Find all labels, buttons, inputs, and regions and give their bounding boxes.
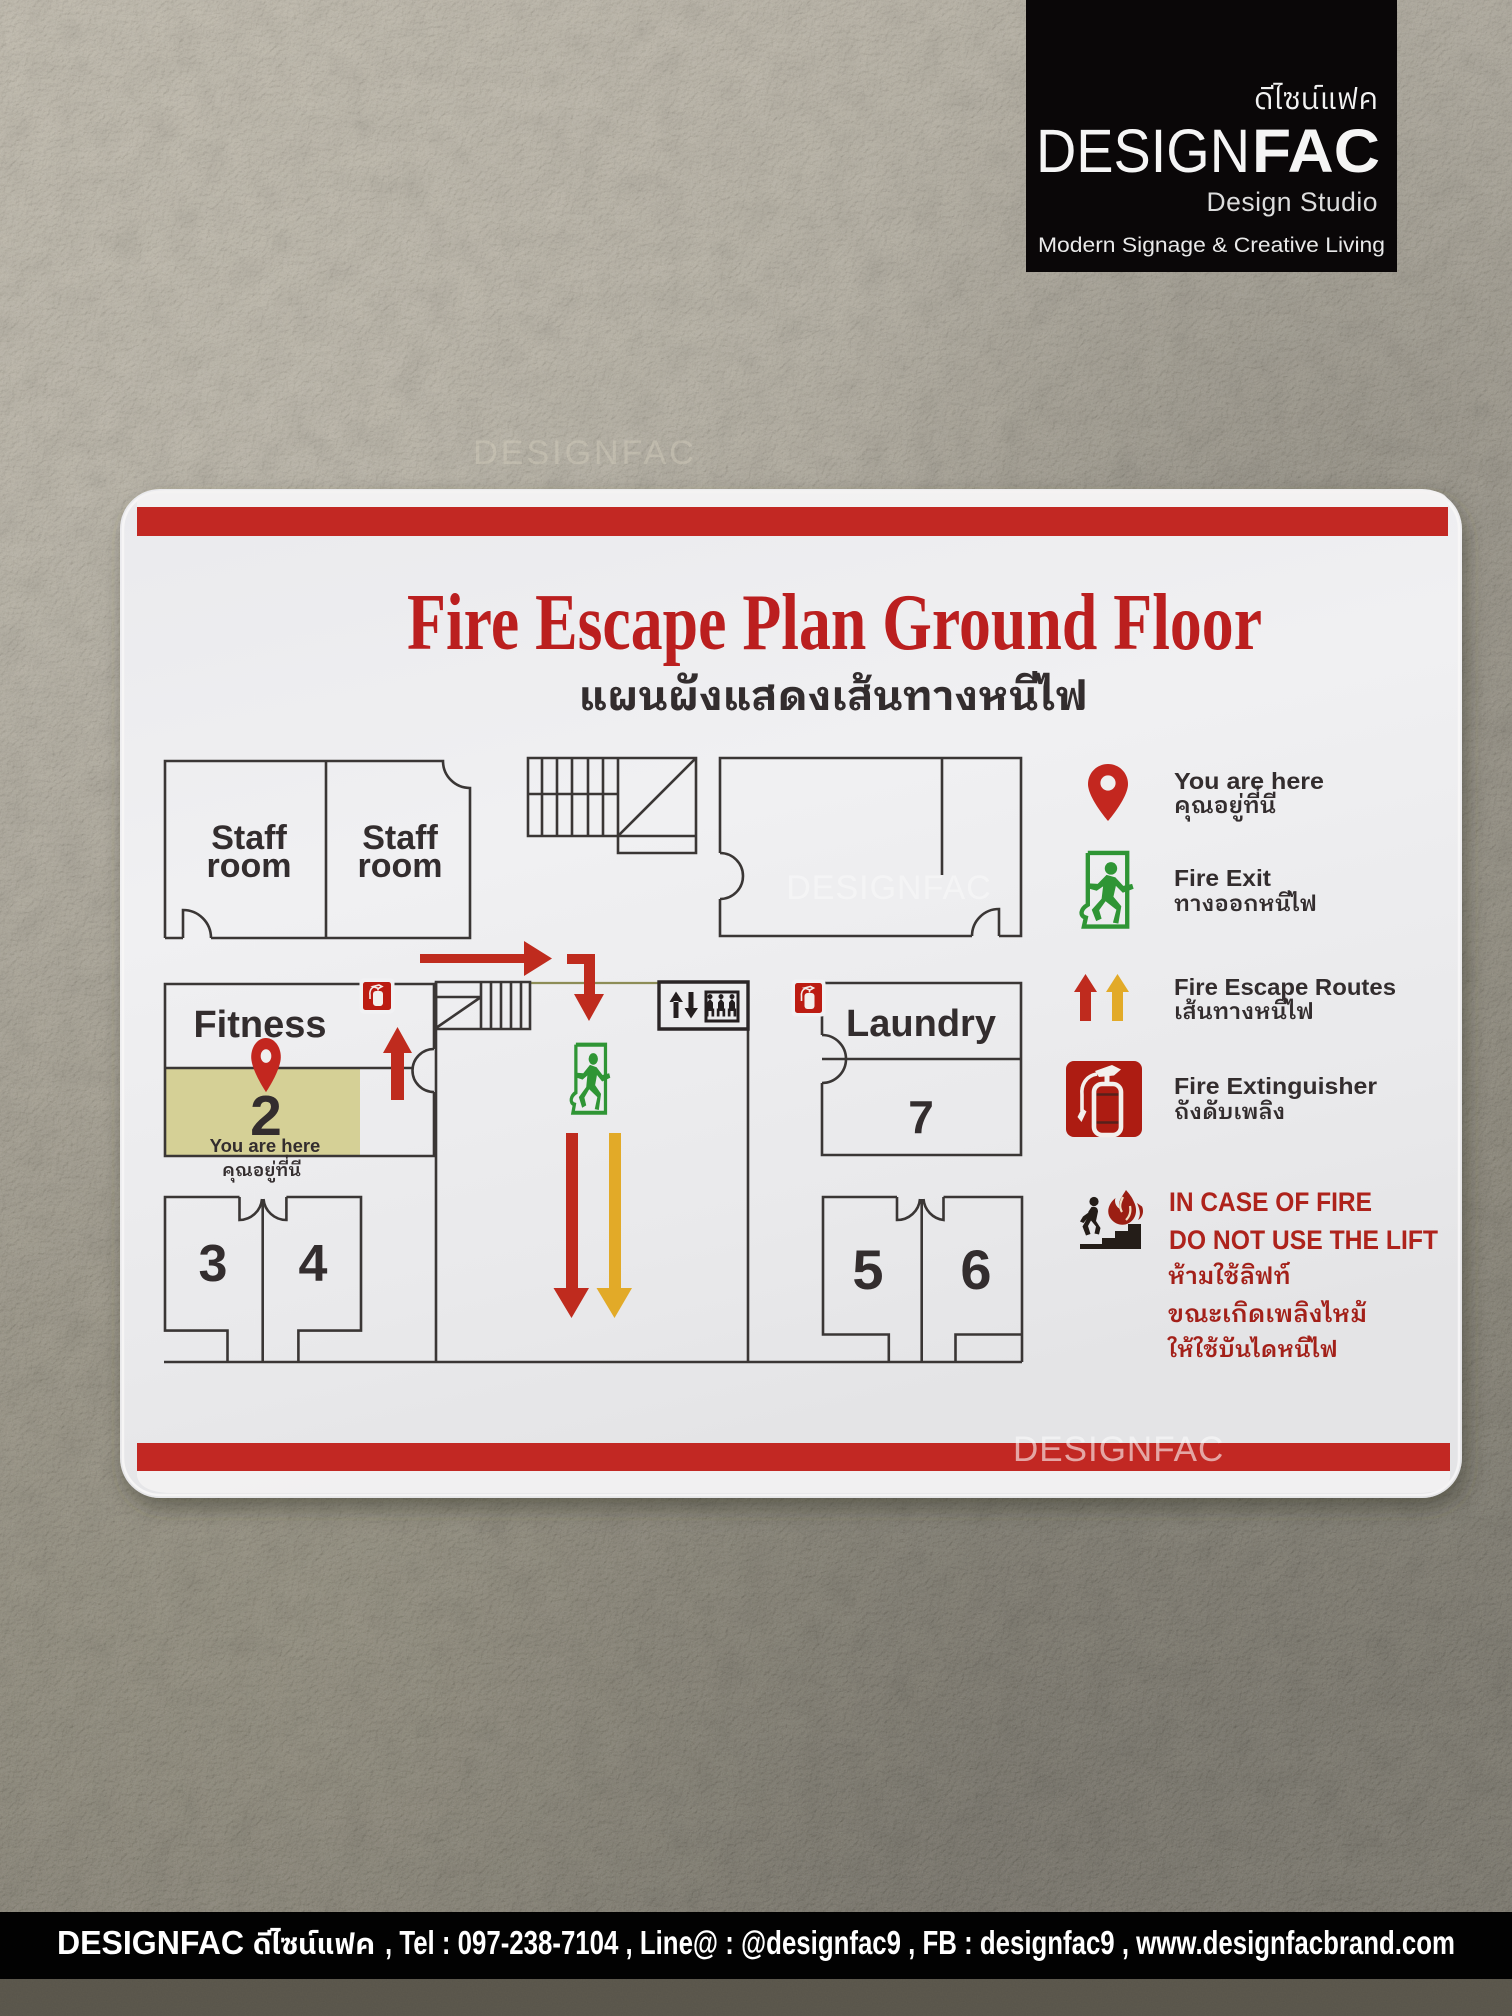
svg-text:7: 7: [908, 1091, 934, 1143]
svg-text:Laundry: Laundry: [846, 1003, 996, 1045]
svg-text:room: room: [358, 847, 443, 885]
svg-text:Design Studio: Design Studio: [1207, 187, 1379, 217]
svg-text:DESIGNFAC: DESIGNFAC: [1013, 1430, 1224, 1469]
svg-text:6: 6: [960, 1238, 991, 1301]
svg-text:4: 4: [299, 1235, 328, 1293]
svg-text:DESIGN: DESIGN: [1036, 117, 1250, 185]
svg-text:DESIGNFAC: DESIGNFAC: [473, 434, 696, 472]
svg-text:You are here: You are here: [210, 1135, 321, 1156]
svg-text:Fire Escape Plan Ground Floor: Fire Escape Plan Ground Floor: [407, 577, 1262, 667]
svg-text:5: 5: [852, 1238, 883, 1301]
svg-text:DO NOT USE THE LIFT: DO NOT USE THE LIFT: [1169, 1225, 1438, 1255]
svg-text:, Tel : 097-238-7104 , Line@ :: , Tel : 097-238-7104 , Line@ : @designfa…: [385, 1924, 1455, 1961]
svg-text:IN CASE OF FIRE: IN CASE OF FIRE: [1169, 1187, 1372, 1217]
svg-text:Fire Extinguisher: Fire Extinguisher: [1174, 1073, 1377, 1099]
svg-text:DESIGNFAC: DESIGNFAC: [57, 1924, 244, 1961]
svg-text:Modern Signage & Creative Livi: Modern Signage & Creative Living: [1038, 233, 1385, 257]
svg-text:room: room: [207, 847, 292, 885]
svg-text:3: 3: [199, 1235, 228, 1293]
svg-text:You are here: You are here: [1174, 768, 1324, 794]
svg-text:DESIGNFAC: DESIGNFAC: [786, 869, 991, 907]
svg-text:Fire Escape Routes: Fire Escape Routes: [1174, 974, 1396, 1000]
svg-text:FAC: FAC: [1252, 117, 1380, 185]
svg-text:Fire Exit: Fire Exit: [1174, 865, 1271, 891]
